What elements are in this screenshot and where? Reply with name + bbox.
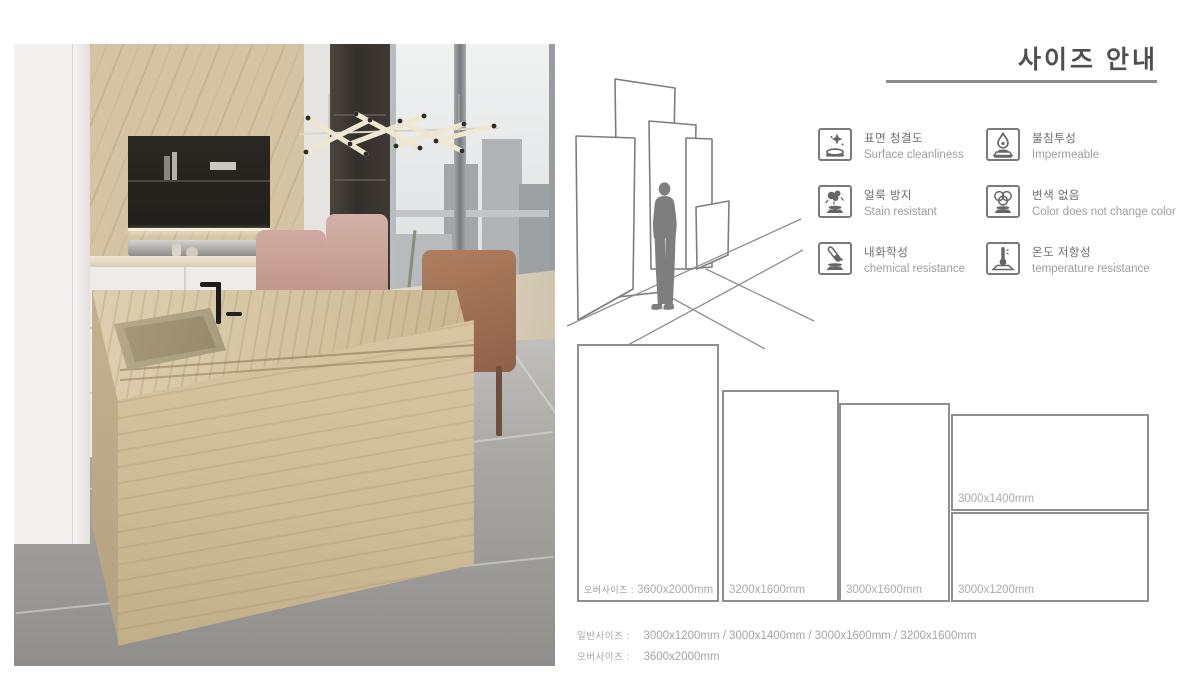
feature-no-color-change: 변색 없음 Color does not change color — [986, 185, 1176, 218]
page-title: 사이즈 안내 — [880, 40, 1158, 76]
feature-label-en: Surface cleanliness — [864, 149, 964, 161]
size-label: 3000x1200mm — [958, 584, 1034, 596]
sparkle-surface-icon — [818, 128, 852, 161]
size-label: 오버사이즈 : 3600x2000mm — [584, 583, 713, 596]
size-panel-3000x1200: 3000x1200mm — [951, 512, 1149, 602]
feature-label-ko: 얼룩 방지 — [864, 187, 937, 203]
feature-label-en: Impermeable — [1032, 149, 1099, 161]
diagram-panel — [576, 136, 635, 320]
book — [164, 156, 170, 180]
stain-splash-icon — [818, 185, 852, 218]
size-panel-3000x1400: 3000x1400mm — [951, 414, 1149, 511]
feature-label-ko: 불침투성 — [1032, 130, 1099, 146]
pendant-light — [294, 94, 504, 214]
dining-chair — [326, 214, 388, 300]
shelf — [128, 180, 270, 182]
chair-leg — [496, 366, 502, 436]
oversize-label: 오버사이즈 : — [577, 649, 635, 663]
book — [172, 152, 177, 180]
feature-temperature-resistance: 온도 저항성 temperature resistance — [986, 242, 1150, 275]
book — [210, 162, 236, 170]
size-label: 3000x1600mm — [846, 584, 922, 596]
size-summary: 일반사이즈 : 3000x1200mm / 3000x1400mm / 3000… — [577, 626, 977, 668]
test-tube-icon — [818, 242, 852, 275]
size-panel-3000x1600: 3000x1600mm — [839, 403, 950, 602]
faucet-handle — [226, 312, 242, 316]
feature-impermeable: 불침투성 Impermeable — [986, 128, 1099, 161]
size-label: 3000x1400mm — [958, 493, 1034, 505]
feature-label-en: Color does not change color — [1032, 206, 1176, 218]
oversize-value: 3600x2000mm — [643, 651, 719, 663]
feature-surface-cleanliness: 표면 청결도 Surface cleanliness — [818, 128, 964, 161]
feature-label-en: chemical resistance — [864, 263, 965, 275]
standard-sizes-value: 3000x1200mm / 3000x1400mm / 3000x1600mm … — [643, 630, 976, 642]
scale-diagram — [565, 58, 815, 350]
oversize-line: 오버사이즈 : 3600x2000mm — [577, 647, 977, 665]
feature-label-ko: 온도 저항성 — [1032, 244, 1150, 260]
feature-label-ko: 변색 없음 — [1032, 187, 1176, 203]
cabinet-seam — [72, 44, 73, 544]
thermometer-icon — [986, 242, 1020, 275]
title-underline — [886, 80, 1157, 83]
faucet — [216, 282, 221, 324]
bowl — [186, 247, 198, 256]
standard-sizes-line: 일반사이즈 : 3000x1200mm / 3000x1400mm / 3000… — [577, 626, 977, 644]
feature-chemical-resistance: 내화학성 chemical resistance — [818, 242, 965, 275]
catalog-page: 사이즈 안내 — [0, 0, 1200, 686]
feature-label-ko: 표면 청결도 — [864, 130, 964, 146]
wall-cabinet — [14, 44, 90, 544]
size-panel-3200x1600: 3200x1600mm — [722, 390, 839, 602]
oversize-prefix: 오버사이즈 : — [584, 585, 634, 595]
water-drop-icon — [986, 128, 1020, 161]
feature-stain-resistant: 얼룩 방지 Stain resistant — [818, 185, 937, 218]
size-label: 3200x1600mm — [729, 584, 805, 596]
shelf-niche — [128, 136, 270, 230]
feature-label-ko: 내화학성 — [864, 244, 965, 260]
color-rings-icon — [986, 185, 1020, 218]
kitchen-photo — [14, 44, 555, 666]
feature-label-en: temperature resistance — [1032, 263, 1150, 275]
size-panel-3600x2000: 오버사이즈 : 3600x2000mm — [577, 344, 719, 602]
cup — [172, 244, 181, 256]
utensil-rail — [128, 240, 270, 256]
standard-sizes-label: 일반사이즈 : — [577, 628, 635, 642]
feature-label-en: Stain resistant — [864, 206, 937, 218]
under-shelf-light — [128, 228, 270, 231]
